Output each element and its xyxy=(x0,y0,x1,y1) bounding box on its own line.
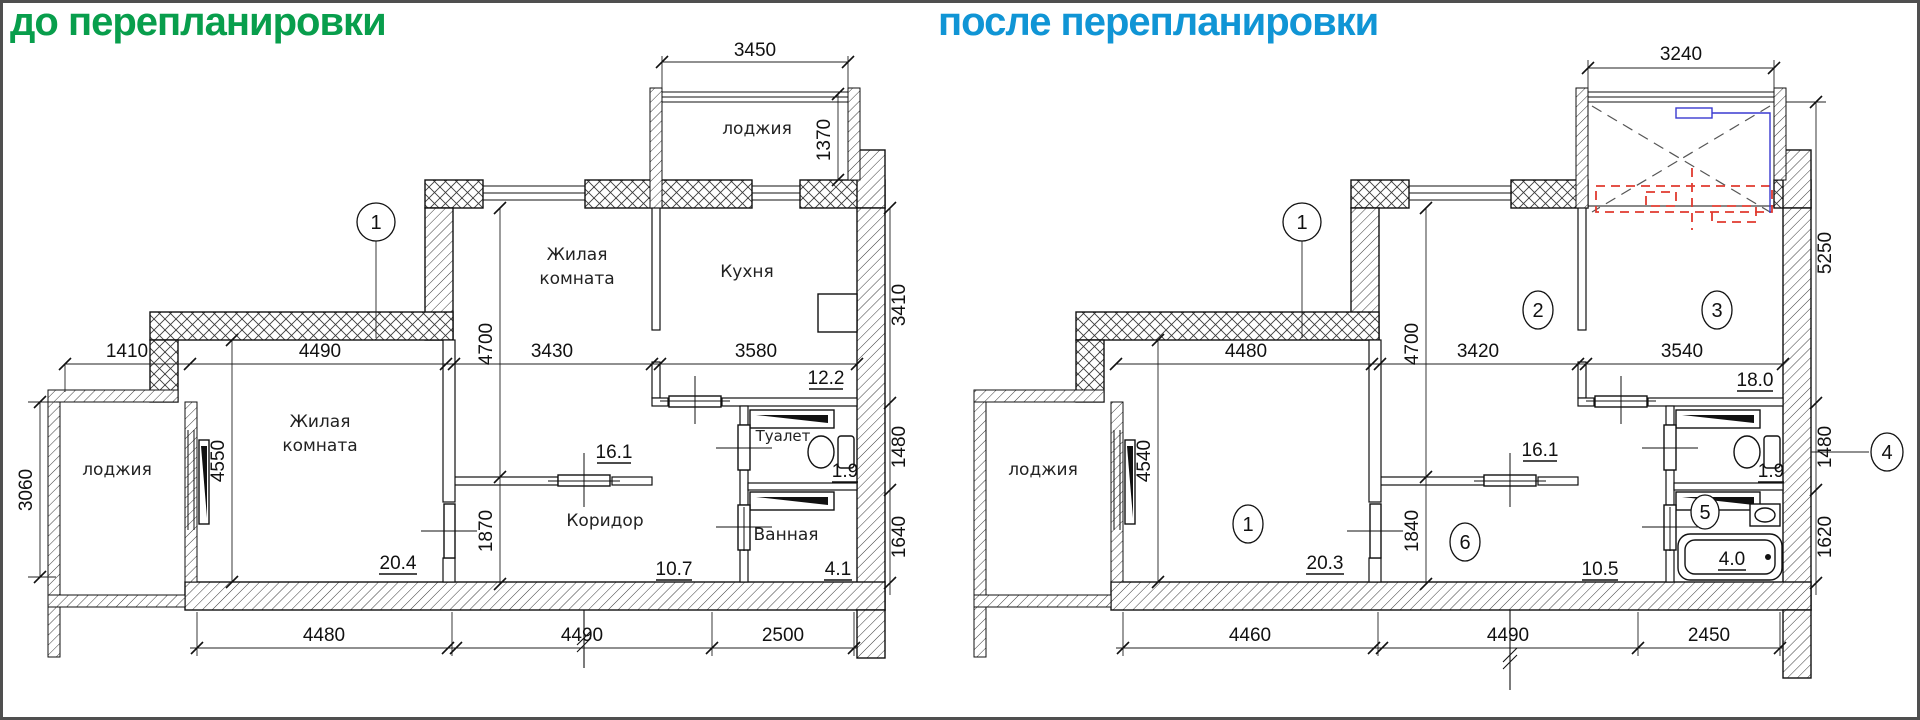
area-corridor: 10.7 xyxy=(656,559,693,580)
dim-text: 4480 xyxy=(1225,341,1267,362)
dim-living-height-after: 4540 xyxy=(1134,334,1164,588)
dim-text: 5250 xyxy=(1815,232,1836,274)
dim-text: 3450 xyxy=(734,40,776,61)
dim-text: 1480 xyxy=(889,426,910,468)
dim-text: 3540 xyxy=(1661,341,1703,362)
dim-text: 4490 xyxy=(1487,625,1529,646)
dim-text: 3410 xyxy=(889,284,910,326)
dim-text: 4460 xyxy=(1229,625,1271,646)
dim-text: 1620 xyxy=(1815,516,1836,558)
area-corridor: 10.5 xyxy=(1582,559,1619,580)
dim-loggia-top-before: 3450 xyxy=(656,40,854,88)
dim-text: 1870 xyxy=(476,510,497,552)
dim-row-before: 1410 4490 3430 3580 xyxy=(59,341,863,392)
axis-label: 1 xyxy=(1296,212,1307,234)
room-label-loggia-top: лоджия xyxy=(722,119,792,139)
area-toilet: 1.9 xyxy=(1758,461,1784,482)
kitchen-unit-icon xyxy=(818,294,857,332)
room-number-bath: 5 xyxy=(1699,502,1710,524)
dim-bottom-before: 4480 4490 2500 xyxy=(190,612,860,656)
red-dashed-partition xyxy=(1596,186,1772,212)
room-label-living-top: Жилая xyxy=(547,245,608,265)
walls-after xyxy=(974,88,1811,678)
room-label-living-main: комната xyxy=(282,436,357,456)
dim-right-column-before: 3410 1480 1640 xyxy=(884,202,910,595)
dim-text: 4490 xyxy=(299,341,341,362)
room-number-corridor: 6 xyxy=(1459,532,1470,554)
dim-text: 4540 xyxy=(1134,440,1155,482)
area-living: 20.3 xyxy=(1307,553,1344,574)
floor-plan-comparison: до перепланировки после перепланировки xyxy=(0,0,1920,720)
room-number-3: 3 xyxy=(1711,300,1722,322)
dim-loggia-height-before: 1370 xyxy=(814,88,844,186)
room-number-2: 2 xyxy=(1532,300,1543,322)
dim-room-height-after: 4700 1840 xyxy=(1402,202,1432,590)
dim-text: 4700 xyxy=(476,323,497,365)
room-label-loggia-left: лоджия xyxy=(1008,460,1078,480)
dim-row-after: 4480 3420 3540 xyxy=(1110,341,1789,370)
radiator-icon xyxy=(1676,410,1760,428)
room-label-bath: Ванная xyxy=(754,525,819,545)
radiator-icon xyxy=(750,410,834,428)
dim-bottom-after: 4460 4490 2450 xyxy=(1116,612,1786,656)
dim-text: 2450 xyxy=(1688,625,1730,646)
dim-text: 1840 xyxy=(1402,510,1423,552)
sink-icon xyxy=(1750,504,1780,526)
door-symbols-after xyxy=(1347,376,1698,558)
room-number-toilet: 4 xyxy=(1881,442,1892,464)
floor-plans-drawing: 1 3450 1370 xyxy=(0,0,1920,720)
dim-text: 1410 xyxy=(106,341,148,362)
area-bath: 4.0 xyxy=(1719,549,1745,570)
dim-text: 3060 xyxy=(16,469,37,511)
dim-text: 1640 xyxy=(889,516,910,558)
room-label-corridor: Коридор xyxy=(566,511,643,531)
plan-after: 1 1 2 3 4 5 6 xyxy=(974,44,1903,690)
room-label-kitchen: Кухня xyxy=(720,262,774,282)
dim-text: 3240 xyxy=(1660,44,1702,65)
dim-text: 2500 xyxy=(762,625,804,646)
room-labels-after: лоджия xyxy=(1008,460,1078,480)
plan-before: 1 3450 1370 xyxy=(16,40,910,668)
dim-text: 1480 xyxy=(1815,426,1836,468)
room-label-living-top: комната xyxy=(539,269,614,289)
dim-text: 3580 xyxy=(735,341,777,362)
dim-text: 4550 xyxy=(208,440,229,482)
dim-text: 4490 xyxy=(561,625,603,646)
dim-loggia-top-after: 3240 xyxy=(1582,44,1780,90)
dim-text: 1370 xyxy=(814,119,835,161)
dim-text: 4480 xyxy=(303,625,345,646)
room-number-living: 1 xyxy=(1242,514,1253,536)
room-label-toilet: Туалет xyxy=(755,427,811,445)
room-label-loggia-left: лоджия xyxy=(82,460,152,480)
area-kitchen: 12.2 xyxy=(808,368,845,389)
room-label-living-main: Жилая xyxy=(290,412,351,432)
walls-before xyxy=(48,88,885,658)
area-living-main: 20.4 xyxy=(380,553,417,574)
dim-text: 3420 xyxy=(1457,341,1499,362)
dim-text: 3430 xyxy=(531,341,573,362)
area-room2: 16.1 xyxy=(1522,440,1559,461)
area-toilet: 1.9 xyxy=(832,461,858,482)
dim-room-height-before: 4700 1870 xyxy=(476,202,506,590)
radiator-icon xyxy=(750,492,834,510)
area-living-top: 16.1 xyxy=(596,442,633,463)
area-room3: 18.0 xyxy=(1737,370,1774,391)
area-bath: 4.1 xyxy=(825,559,851,580)
dim-text: 4700 xyxy=(1402,323,1423,365)
partitions-after xyxy=(1369,208,1783,582)
blue-marker xyxy=(1676,108,1712,118)
dim-living-height-before: 4550 xyxy=(208,334,238,588)
axis-label: 1 xyxy=(370,212,381,234)
demolition-marks xyxy=(1592,106,1772,230)
break-line-after xyxy=(1503,610,1517,690)
